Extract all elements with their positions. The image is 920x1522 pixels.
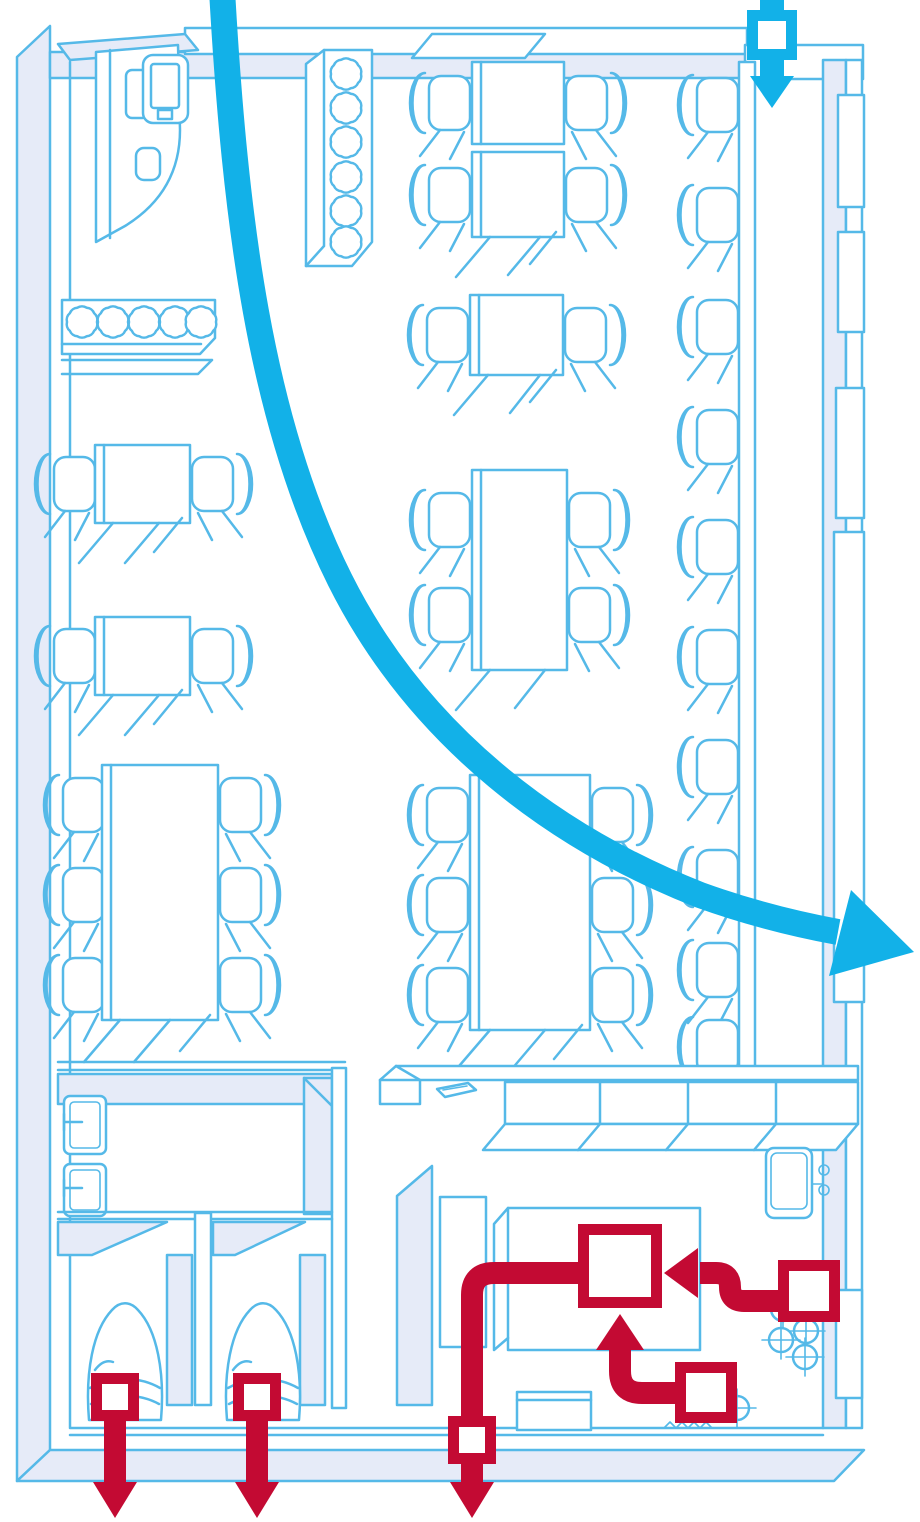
route-lower-to-hazard xyxy=(620,1348,675,1393)
table-2seat-mid-3 xyxy=(408,295,625,415)
exit-marker-stall-left xyxy=(93,1379,137,1519)
entry-marker xyxy=(750,0,794,108)
pass-counter-top xyxy=(396,1066,858,1080)
counter-top xyxy=(739,62,755,1090)
floor-plan-svg xyxy=(0,0,920,1522)
table-2seat-left-2 xyxy=(35,617,252,735)
washroom-sink-1 xyxy=(64,1096,106,1154)
kitchen-station-lower-marker xyxy=(681,1368,732,1418)
stall-post xyxy=(195,1213,211,1405)
bottom-wall xyxy=(17,1450,864,1481)
window-panel xyxy=(838,95,864,207)
stall-wall-right xyxy=(300,1255,325,1405)
washroom-sink-2 xyxy=(64,1164,106,1216)
cabinet-row xyxy=(505,1082,858,1124)
bar-counter xyxy=(678,62,755,1103)
window-panel xyxy=(838,232,864,332)
stall-ceiling-right xyxy=(213,1222,305,1255)
stall-ceiling-left xyxy=(58,1222,167,1255)
planter-left xyxy=(62,300,216,374)
washroom-right-wall xyxy=(304,1078,332,1214)
restroom-outer-wall xyxy=(332,1068,346,1408)
kitchen-partition xyxy=(397,1166,432,1405)
kitchen-low-unit xyxy=(517,1392,591,1430)
table-2seat-mid-1 xyxy=(410,62,626,159)
restroom-block xyxy=(58,1062,346,1420)
hazard-marker xyxy=(584,1230,657,1303)
window-panel xyxy=(836,388,864,518)
table-2seat-mid-2 xyxy=(410,152,626,277)
pass-counter-end xyxy=(380,1080,420,1104)
left-wall xyxy=(17,26,50,1481)
reception-counter xyxy=(96,45,188,242)
table-6seat-mid xyxy=(408,775,652,1072)
table-2seat-left-1 xyxy=(35,445,252,563)
kitchen-sink xyxy=(766,1148,829,1218)
table-4seat-mid xyxy=(410,470,629,710)
floor-plan-illustration xyxy=(0,0,920,1522)
stall-wall-left xyxy=(167,1255,192,1405)
top-skylight xyxy=(412,34,545,58)
route-right-to-hazard xyxy=(700,1273,778,1301)
table-6seat-left xyxy=(44,765,280,1062)
kitchen-station-right-marker xyxy=(784,1266,835,1317)
planter-top-bench xyxy=(306,50,372,266)
exit-marker-stall-right xyxy=(235,1379,279,1519)
